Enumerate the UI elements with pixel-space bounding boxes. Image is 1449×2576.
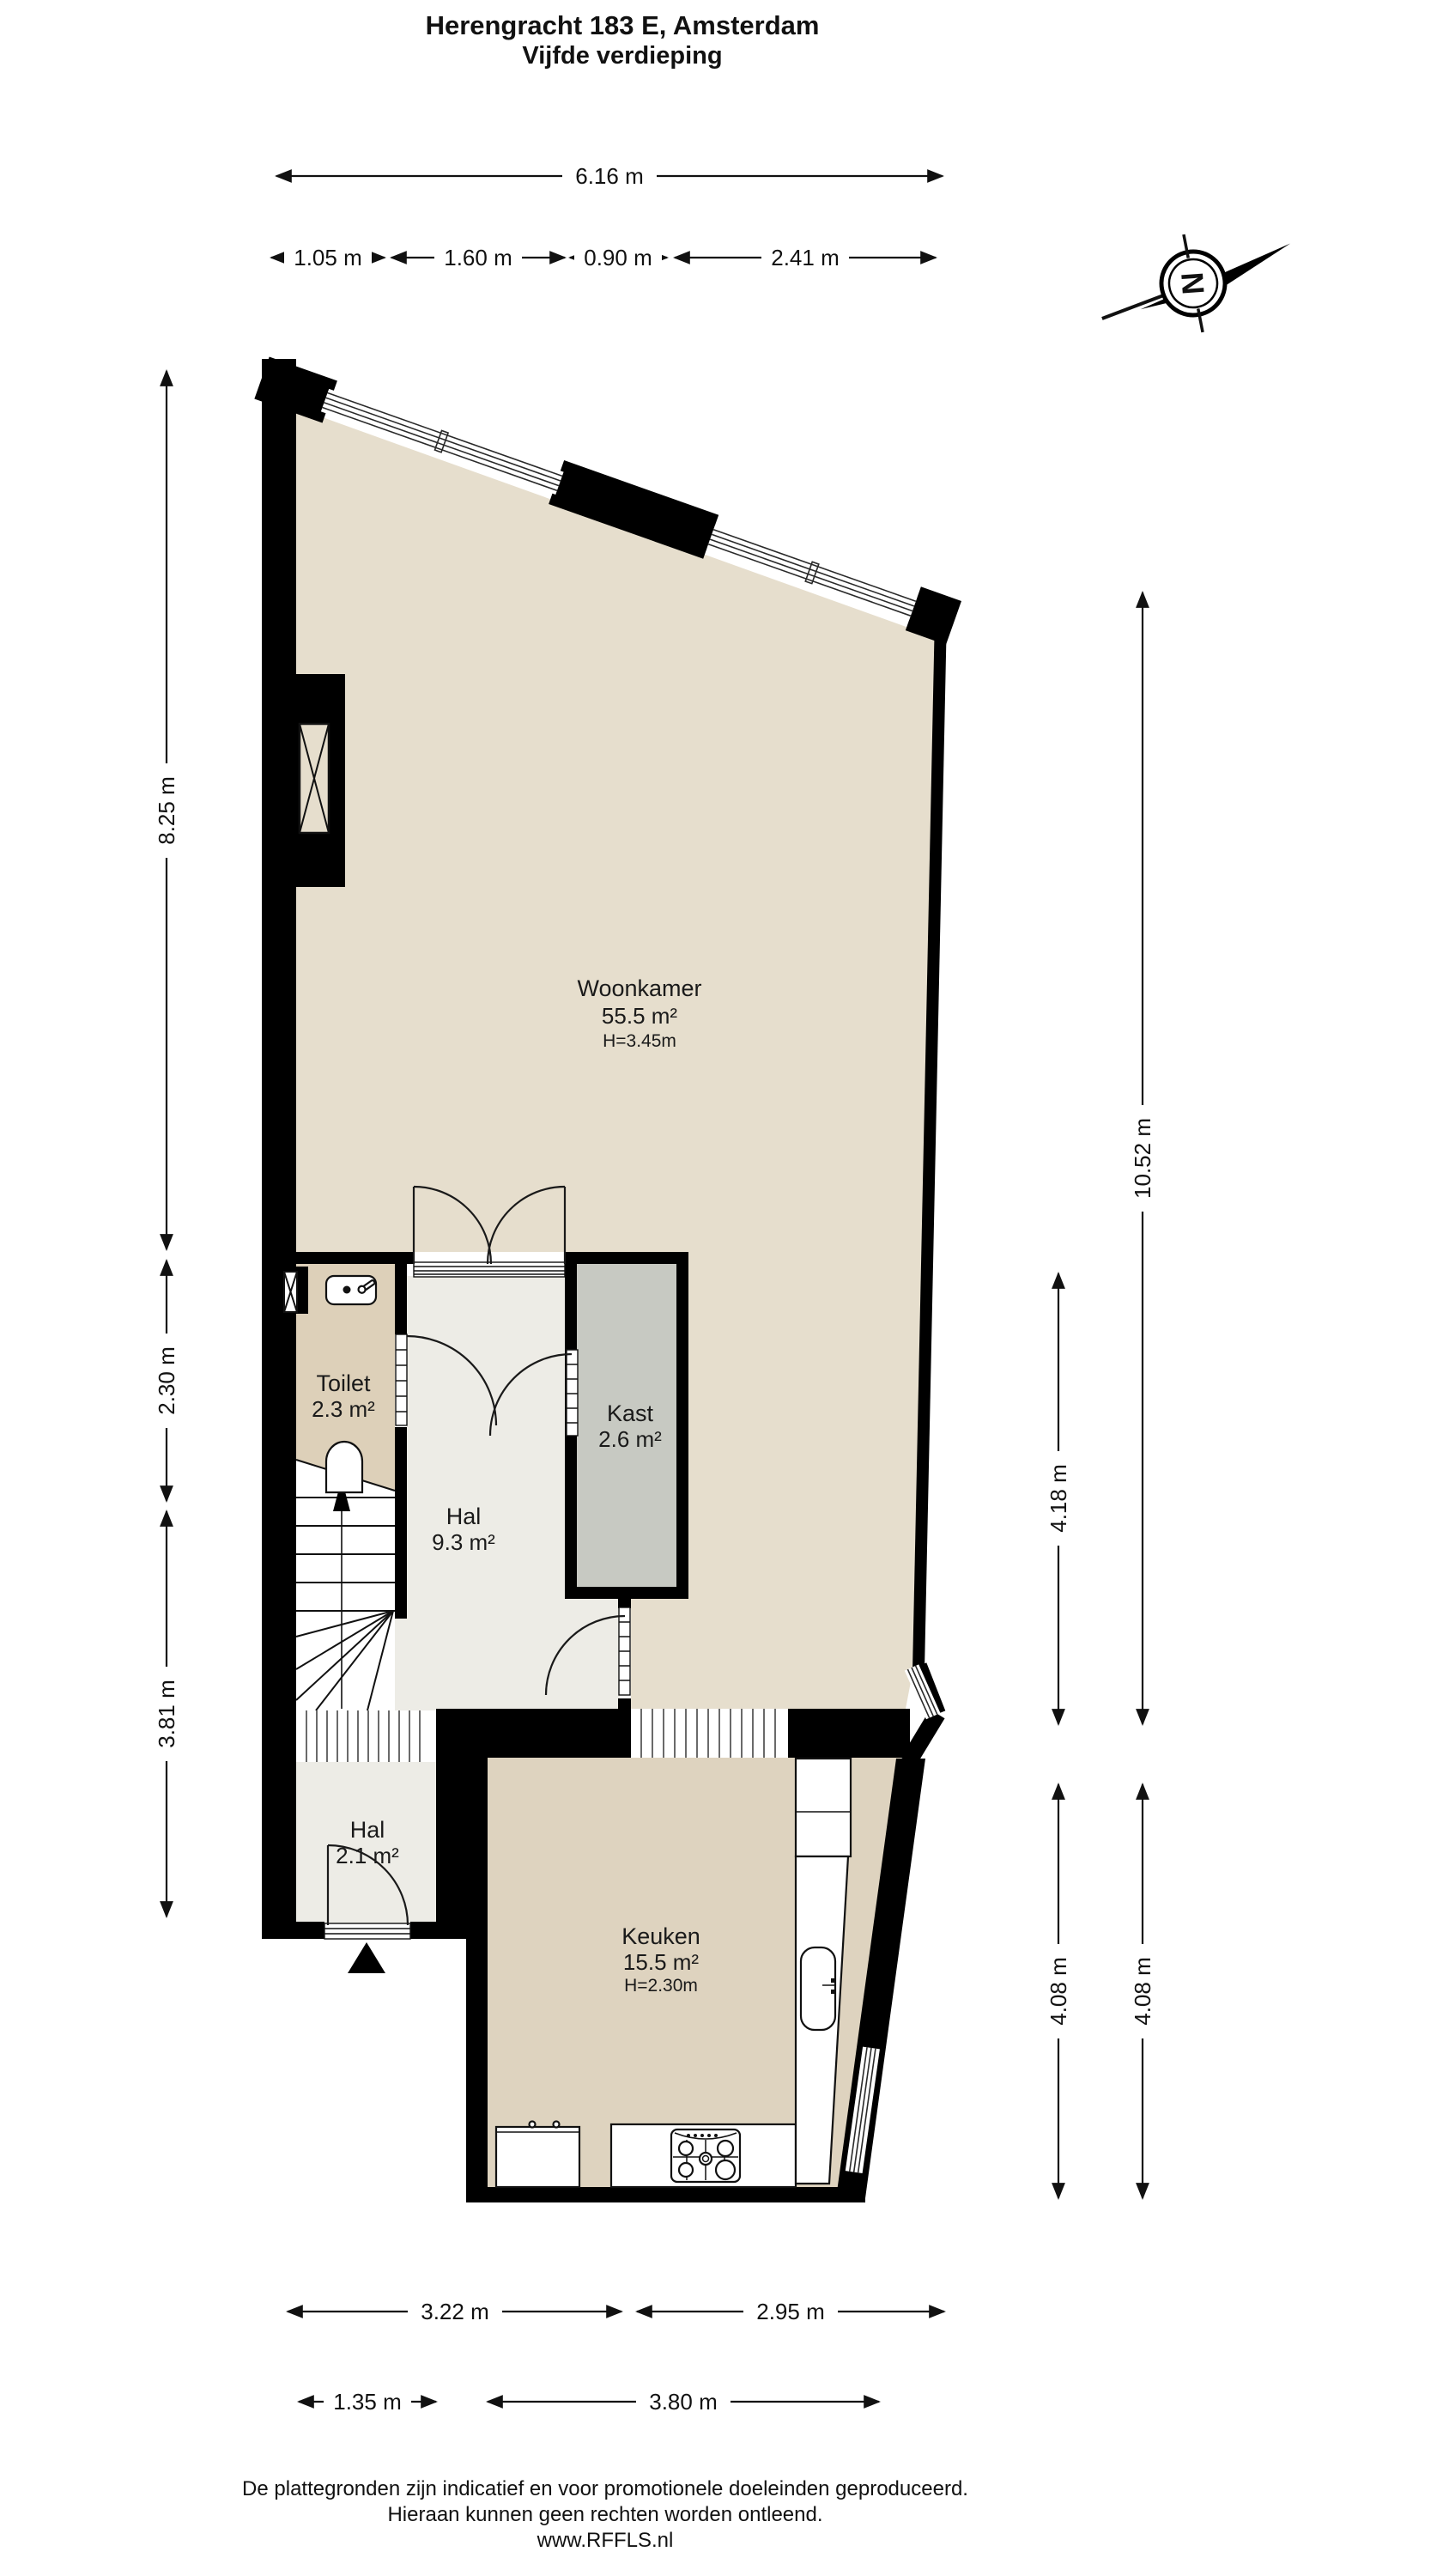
- svg-text:H=3.45m: H=3.45m: [603, 1031, 676, 1051]
- steps-band-keuken: [631, 1709, 788, 1758]
- steps-band-entree: [296, 1710, 436, 1762]
- stove-icon: [671, 2129, 740, 2182]
- svg-text:2.41 m: 2.41 m: [771, 245, 840, 270]
- svg-text:3.81 m: 3.81 m: [154, 1680, 179, 1748]
- svg-text:9.3 m²: 9.3 m²: [432, 1529, 495, 1555]
- svg-text:55.5 m²: 55.5 m²: [602, 1003, 677, 1029]
- svg-text:Toilet: Toilet: [316, 1370, 371, 1396]
- svg-text:1.60 m: 1.60 m: [444, 245, 512, 270]
- svg-text:2.30 m: 2.30 m: [154, 1346, 179, 1415]
- svg-text:Hal: Hal: [446, 1504, 482, 1529]
- svg-text:6.16 m: 6.16 m: [575, 163, 644, 189]
- svg-text:8.25 m: 8.25 m: [154, 776, 179, 845]
- svg-text:0.90 m: 0.90 m: [584, 245, 652, 270]
- svg-text:3.80 m: 3.80 m: [649, 2389, 718, 2415]
- dim-right-outer-2: 4.08 m: [1130, 1784, 1155, 2198]
- svg-text:4.08 m: 4.08 m: [1046, 1957, 1071, 2026]
- room-kast-label: Kast 2.6 m²: [598, 1400, 662, 1452]
- kitchen-unit-icon: [496, 2122, 579, 2188]
- dim-right-inner-2: 4.08 m: [1046, 1784, 1071, 2198]
- svg-text:Hieraan kunnen geen rechten wo: Hieraan kunnen geen rechten worden ontle…: [387, 2503, 822, 2526]
- floorplan-svg: Herengracht 183 E, Amsterdam Vijfde verd…: [0, 0, 1449, 2576]
- svg-text:1.35 m: 1.35 m: [333, 2389, 402, 2415]
- dim-bottom-1b: 2.95 m: [637, 2299, 944, 2324]
- svg-text:De plattegronden zijn indicati: De plattegronden zijn indicatief en voor…: [242, 2477, 968, 2500]
- dim-bottom-2b: 3.80 m: [488, 2389, 879, 2415]
- dim-left-2: 2.30 m: [154, 1261, 179, 1501]
- svg-text:2.3 m²: 2.3 m²: [312, 1396, 375, 1422]
- page-subtitle: Vijfde verdieping: [522, 42, 722, 70]
- dim-bottom-2a: 1.35 m: [299, 2389, 436, 2415]
- toilet-icon: [326, 1442, 362, 1492]
- entrance-arrow-icon: [348, 1942, 385, 1973]
- dim-top-seg-1: 1.05 m: [271, 245, 385, 270]
- svg-text:4.18 m: 4.18 m: [1046, 1464, 1071, 1533]
- svg-text:2.95 m: 2.95 m: [756, 2299, 825, 2324]
- dim-right-outer-1: 10.52 m: [1130, 592, 1155, 1724]
- duct-shaft-icon: [300, 724, 329, 833]
- svg-text:2.6 m²: 2.6 m²: [598, 1426, 662, 1452]
- svg-text:1.05 m: 1.05 m: [294, 245, 362, 270]
- footer-disclaimer: De plattegronden zijn indicatief en voor…: [242, 2477, 968, 2552]
- svg-text:10.52 m: 10.52 m: [1130, 1118, 1155, 1199]
- room-keuken-label: Keuken 15.5 m² H=2.30m: [621, 1923, 700, 1996]
- dim-bottom-1a: 3.22 m: [288, 2299, 621, 2324]
- dim-top-seg-2: 1.60 m: [391, 245, 565, 270]
- dim-right-inner-1: 4.18 m: [1046, 1273, 1071, 1724]
- svg-text:Hal: Hal: [350, 1817, 385, 1843]
- svg-text:2.1 m²: 2.1 m²: [336, 1843, 399, 1868]
- compass-icon: N: [1089, 215, 1304, 350]
- floorplan-page: Herengracht 183 E, Amsterdam Vijfde verd…: [0, 0, 1449, 2576]
- dim-left-1: 8.25 m: [154, 371, 179, 1249]
- page-title: Herengracht 183 E, Amsterdam: [426, 10, 820, 40]
- stairs: [296, 1460, 395, 1710]
- dim-left-3: 3.81 m: [154, 1511, 179, 1917]
- dim-top-seg-4: 2.41 m: [675, 245, 936, 270]
- svg-text:H=2.30m: H=2.30m: [624, 1976, 698, 1996]
- room-toilet-label: Toilet 2.3 m²: [312, 1370, 375, 1422]
- svg-text:Kast: Kast: [607, 1400, 654, 1426]
- dim-top-overall: 6.16 m: [276, 163, 943, 189]
- duct-toilet-icon: [284, 1272, 297, 1312]
- svg-text:Keuken: Keuken: [621, 1923, 700, 1949]
- svg-text:3.22 m: 3.22 m: [421, 2299, 489, 2324]
- sink-icon: [326, 1276, 376, 1304]
- compass-north-label: N: [1174, 271, 1211, 296]
- svg-text:4.08 m: 4.08 m: [1130, 1957, 1155, 2026]
- svg-text:15.5 m²: 15.5 m²: [623, 1949, 699, 1975]
- svg-text:Woonkamer: Woonkamer: [577, 975, 701, 1001]
- footer-website: www.RFFLS.nl: [537, 2529, 674, 2552]
- dim-top-seg-3: 0.90 m: [570, 245, 667, 270]
